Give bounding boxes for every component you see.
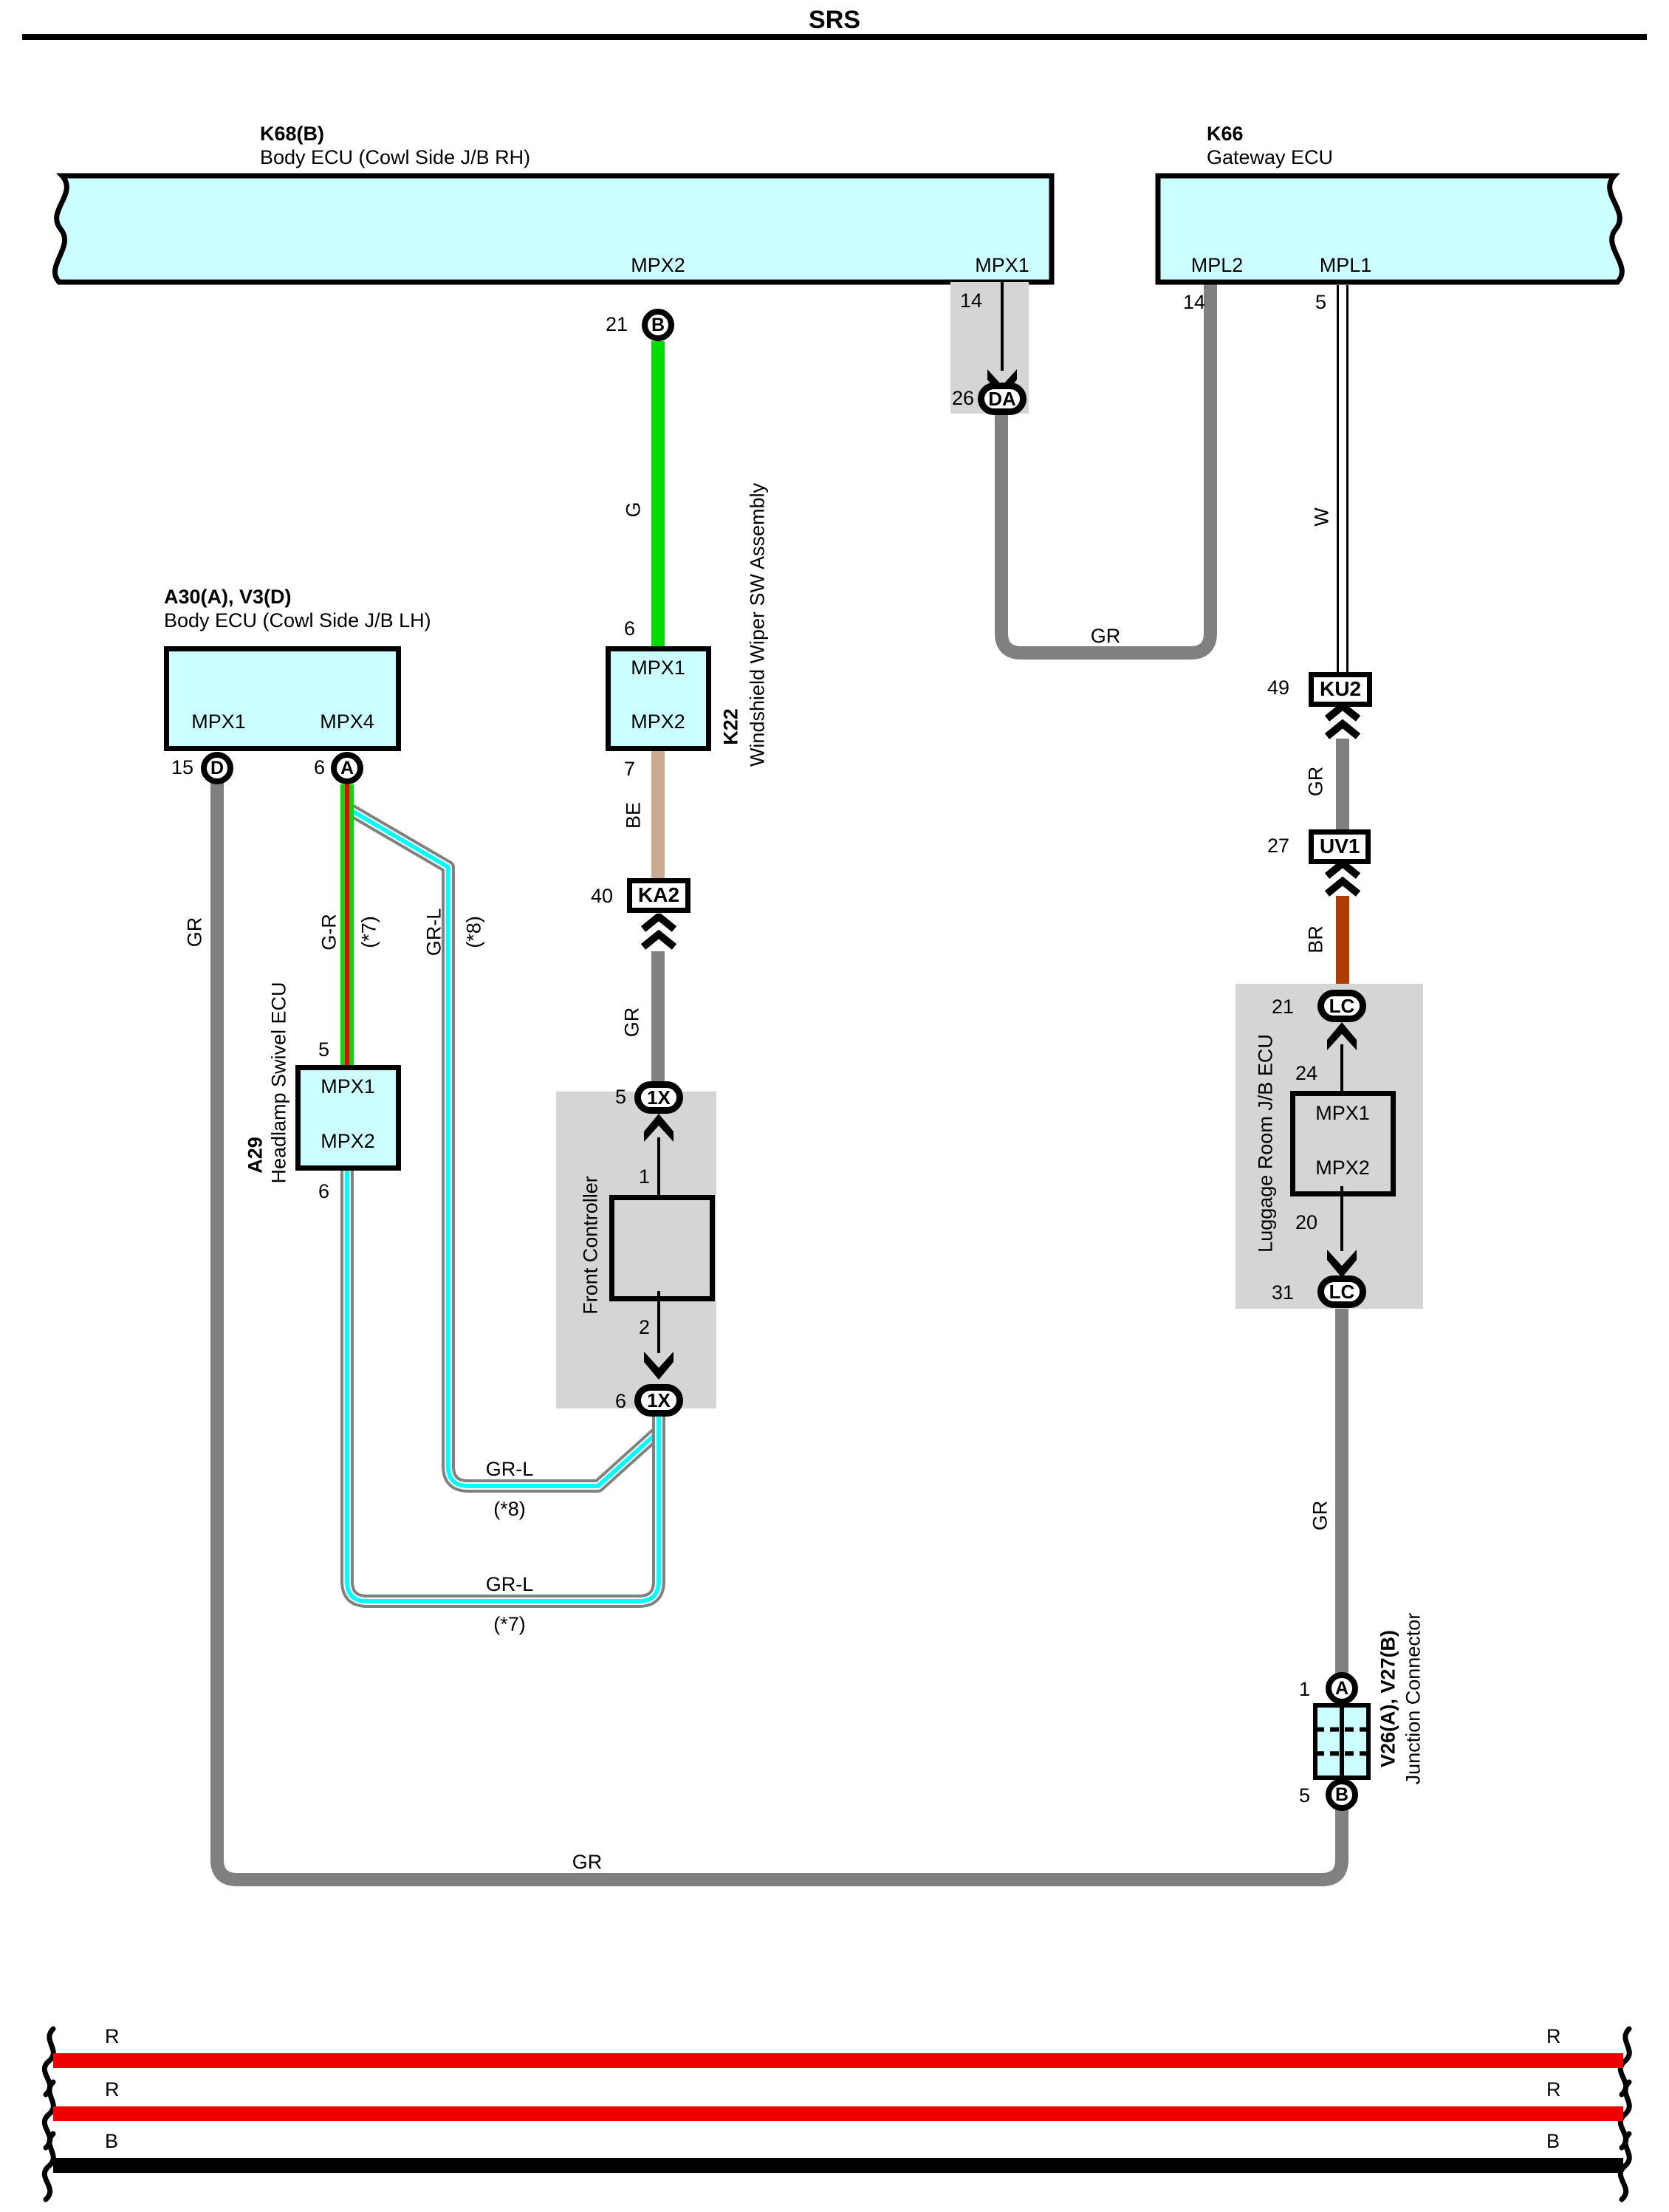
- wire-label-gr-l-run8: GR-L: [486, 1458, 534, 1481]
- junction-name: Junction Connector: [1402, 1613, 1425, 1785]
- wire-label-br: BR: [1305, 925, 1328, 953]
- wire-label-g-r: G-R: [318, 914, 341, 951]
- signal-line-x5-fc: [657, 1137, 660, 1195]
- pin-49-number: 49: [1260, 677, 1289, 699]
- k22-code: K22: [720, 708, 743, 745]
- double-chevron-up-icon: [1323, 703, 1362, 740]
- junction-code: V26(A), V27(B): [1377, 1630, 1400, 1767]
- wire-label-gr-left: GR: [184, 917, 207, 948]
- wire-w-vertical: [1337, 285, 1348, 672]
- wire-br-vertical: [1336, 896, 1349, 991]
- harness-label-b-right: B: [1546, 2130, 1560, 2153]
- harness-wire-r1: [53, 2053, 1623, 2068]
- k68-pin-mpx2-label: MPX2: [631, 254, 685, 277]
- wire-label-gr-junction: GR: [1309, 1501, 1332, 1531]
- pin-15-number: 15: [164, 756, 193, 779]
- pin-lc21-number: 21: [1264, 996, 1294, 1018]
- connector-x6: 1X: [634, 1384, 683, 1417]
- k22-pin-mpx2-label: MPX2: [631, 710, 685, 733]
- k22-name: Windshield Wiper SW Assembly: [747, 483, 770, 767]
- connector-b21: B: [642, 309, 674, 341]
- double-chevron-up-icon: [640, 914, 678, 951]
- wire-note-star7: (*7): [358, 916, 381, 948]
- connector-junction-b: B: [1326, 1778, 1358, 1811]
- arrow-down-icon: [1326, 1250, 1358, 1279]
- connector-a6: A: [331, 752, 363, 784]
- a30-code: A30(A), V3(D): [164, 586, 292, 609]
- wire-label-gr-l-run7: GR-L: [486, 1573, 534, 1596]
- harness-wire-b: [53, 2158, 1623, 2173]
- wire-note-star7-run: (*7): [493, 1613, 526, 1636]
- pin-ja1-number: 1: [1285, 1678, 1310, 1701]
- k22-pin-mpx1-label: MPX1: [631, 657, 685, 679]
- k66-name: Gateway ECU: [1207, 146, 1333, 169]
- pin-lc31-number: 31: [1264, 1281, 1294, 1304]
- harness-label-r1-right: R: [1546, 2025, 1561, 2048]
- connector-da26: DA: [978, 383, 1027, 415]
- wire-label-gr-ka2: GR: [621, 1007, 644, 1038]
- harness-label-r2-left: R: [105, 2078, 120, 2101]
- k66-pin5-number: 5: [1304, 291, 1326, 314]
- luggage-pin-mpx1-label: MPX1: [1315, 1102, 1370, 1125]
- k66-pin14-number: 14: [1176, 291, 1205, 314]
- connector-junction-a: A: [1326, 1672, 1358, 1705]
- pin-jb5-number: 5: [1285, 1784, 1310, 1807]
- connector-lc31: LC: [1317, 1276, 1366, 1308]
- wire-label-be: BE: [623, 802, 645, 829]
- wire-gr-da-to-mpl2: [1001, 284, 1210, 653]
- harness-label-r1-left: R: [105, 2025, 120, 2048]
- k22-pin-top-number: 6: [606, 617, 635, 640]
- k66-pin-mpl2-label: MPL2: [1191, 254, 1244, 277]
- a29-pin-bottom-number: 6: [304, 1180, 329, 1203]
- pin-26-number: 26: [945, 387, 974, 410]
- k68-pin14-number: 14: [960, 290, 982, 312]
- a30-block: [164, 646, 401, 751]
- luggage-pin-out-number: 20: [1288, 1211, 1317, 1234]
- double-chevron-up-icon: [1323, 860, 1362, 897]
- a29-name: Headlamp Swivel ECU: [268, 982, 291, 1183]
- a29-pin-mpx1-label: MPX1: [321, 1075, 375, 1098]
- wire-label-gr-ku2: GR: [1305, 767, 1328, 797]
- wire-gr-ka2-1x: [651, 951, 665, 1093]
- wire-label-gr-da: GR: [1091, 625, 1121, 648]
- connector-ka2: KA2: [627, 878, 690, 913]
- luggage-pin-in-number: 24: [1288, 1062, 1317, 1085]
- pin-x6-number: 6: [601, 1390, 626, 1413]
- k66-pin-mpl1-label: MPL1: [1320, 254, 1372, 277]
- wiring-diagram-page: SRS K68(B) Body ECU: [0, 0, 1669, 2212]
- a30-pin-mpx4-label: MPX4: [320, 710, 374, 733]
- pin-6a-number: 6: [295, 756, 325, 779]
- wire-gr-main-loop: [217, 783, 1342, 1880]
- signal-line-fc-x6: [657, 1291, 660, 1353]
- wire-label-gr-l-8: GR-L: [423, 908, 446, 956]
- junction-grid: [1313, 1703, 1371, 1780]
- fc-pin-out-number: 2: [625, 1316, 650, 1339]
- a29-pin-top-number: 5: [304, 1038, 329, 1061]
- k68-name: Body ECU (Cowl Side J/B RH): [260, 146, 530, 169]
- harness-label-r2-right: R: [1546, 2078, 1561, 2101]
- connector-x5: 1X: [634, 1081, 683, 1114]
- luggage-pin-mpx2-label: MPX2: [1315, 1157, 1370, 1179]
- a30-name: Body ECU (Cowl Side J/B LH): [164, 609, 431, 632]
- front-controller-name: Front Controller: [580, 1176, 603, 1315]
- connector-d15: D: [201, 752, 233, 784]
- wire-gr-r-vertical: [340, 784, 354, 1065]
- a29-pin-mpx2-label: MPX2: [321, 1130, 375, 1153]
- harness-label-b-left: B: [105, 2130, 118, 2153]
- connector-lc21: LC: [1317, 990, 1366, 1022]
- pin-27-number: 27: [1260, 835, 1289, 857]
- wire-gr-ku2-uv1: [1336, 739, 1349, 829]
- wire-be-vertical: [651, 751, 665, 880]
- pin-40-number: 40: [583, 885, 613, 908]
- pin-x5-number: 5: [601, 1086, 626, 1109]
- front-controller-box: [609, 1195, 715, 1301]
- wire-label-g: G: [623, 501, 645, 517]
- wire-g-vertical: [651, 341, 665, 646]
- signal-line-lc21-mpx1: [1340, 1044, 1343, 1091]
- arrow-down-icon: [642, 1352, 675, 1381]
- signal-line-mpx2-lc31: [1340, 1186, 1343, 1251]
- fc-pin-in-number: 1: [625, 1165, 650, 1188]
- wire-note-star8: (*8): [463, 916, 486, 948]
- luggage-name: Luggage Room J/B ECU: [1255, 1034, 1278, 1253]
- k68-code: K68(B): [260, 123, 324, 145]
- wire-label-gr-bottom: GR: [572, 1851, 603, 1874]
- connector-uv1: UV1: [1309, 829, 1371, 864]
- signal-line-k68-da: [1001, 282, 1004, 371]
- wire-label-w: W: [1311, 507, 1334, 526]
- a29-code: A29: [244, 1137, 267, 1174]
- k66-code: K66: [1207, 123, 1244, 145]
- a30-pin-mpx1-label: MPX1: [191, 710, 246, 733]
- pin-21-number: 21: [595, 313, 628, 336]
- connector-ku2: KU2: [1309, 672, 1372, 707]
- k68-block: [38, 173, 1056, 285]
- k22-pin-bottom-number: 7: [606, 758, 635, 781]
- wire-note-star8-run: (*8): [493, 1498, 526, 1521]
- k68-pin-mpx1-label: MPX1: [975, 254, 1029, 277]
- harness-wire-r2: [53, 2106, 1623, 2121]
